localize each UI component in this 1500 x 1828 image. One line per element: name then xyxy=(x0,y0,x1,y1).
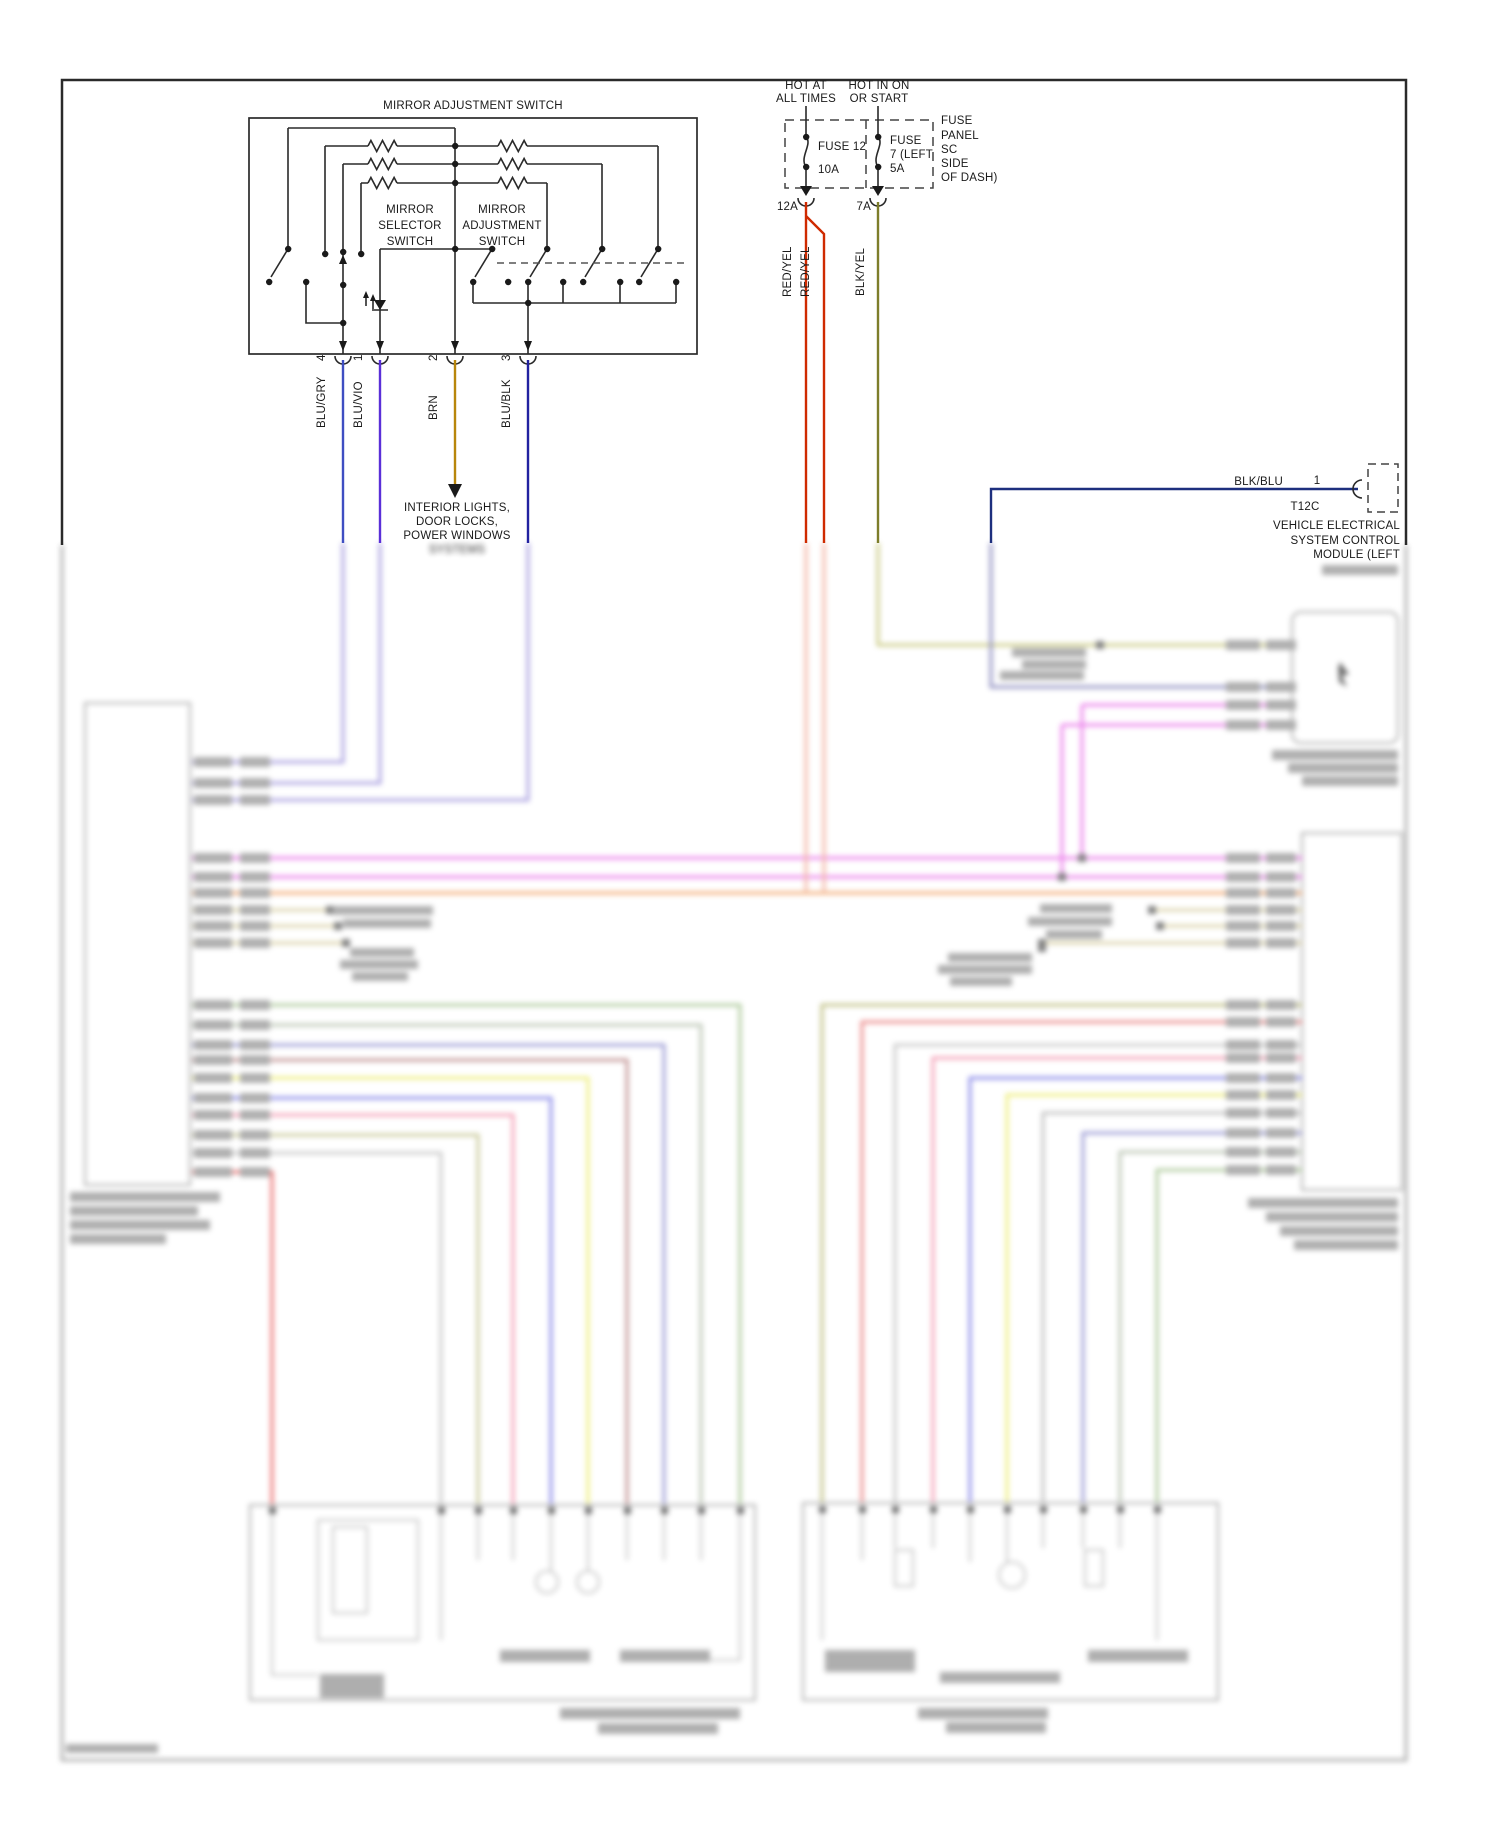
blk-blu-label: BLK/BLU xyxy=(1234,476,1283,488)
svg-text:MODULE (LEFT: MODULE (LEFT xyxy=(1313,549,1400,561)
vescm-connector-id: T12C xyxy=(1291,501,1320,513)
svg-text:PANEL: PANEL xyxy=(941,130,979,142)
svg-text:SELECTOR: SELECTOR xyxy=(378,220,441,232)
wiring-diagram-page: SYSTEMS MIRROR ADJUSTMENT SWITCH xyxy=(0,0,1500,1828)
hot-in-on-label: HOT IN ON xyxy=(848,80,909,92)
left-wire-bundle xyxy=(192,1005,740,1505)
svg-text:DOOR LOCKS,: DOOR LOCKS, xyxy=(416,516,498,528)
cross-car-wires xyxy=(192,543,1302,893)
svg-text:OF DASH): OF DASH) xyxy=(941,172,998,184)
fuse-12-label: FUSE 12 xyxy=(818,141,866,153)
brn-note-line-4: SYSTEMS xyxy=(429,544,485,556)
svg-text:7 (LEFT: 7 (LEFT xyxy=(890,149,933,161)
svg-text:INTERIOR LIGHTS,: INTERIOR LIGHTS, xyxy=(404,502,510,514)
pin-number: 1 xyxy=(353,354,365,361)
svg-text:OR START: OR START xyxy=(850,93,909,105)
brn-note: INTERIOR LIGHTS, DOOR LOCKS, POWER WINDO… xyxy=(403,502,510,542)
pin-number: 2 xyxy=(428,354,440,361)
wire-label: BLK/YEL xyxy=(855,248,867,296)
right-mirror-module-box xyxy=(1302,833,1402,1190)
fuse-connector-icons xyxy=(798,198,886,206)
led-icon xyxy=(363,291,388,310)
vescm-pin-number: 1 xyxy=(1314,475,1321,487)
brn-arrow-icon xyxy=(448,484,462,498)
bottom-left-assembly-box xyxy=(250,1505,755,1700)
page-border xyxy=(62,80,1406,545)
connector-7a-label: 7A xyxy=(857,201,872,213)
adjustment-label: MIRROR xyxy=(478,204,526,216)
vescm-dashed-box xyxy=(1368,464,1398,512)
switch-box-title: MIRROR ADJUSTMENT SWITCH xyxy=(383,100,563,112)
fuse-7-label: FUSE xyxy=(890,135,922,147)
wiper-arrow-icon xyxy=(339,255,347,264)
connector-12a-label: 12A xyxy=(777,201,798,213)
hot-at-all-times-label: HOT AT xyxy=(785,80,827,92)
svg-text:ADJUSTMENT: ADJUSTMENT xyxy=(462,220,541,232)
pin-number: 4 xyxy=(316,354,328,361)
svg-text:SC: SC xyxy=(941,144,957,156)
wire-label: BLU/VIO xyxy=(353,381,365,428)
sharp-section: MIRROR ADJUSTMENT SWITCH MIRROR SELECTOR… xyxy=(62,80,1406,561)
svg-text:5A: 5A xyxy=(890,163,905,175)
wire-label: RED/YEL xyxy=(800,246,812,297)
wire-label: RED/YEL xyxy=(782,246,794,297)
fuse-12-rating: 10A xyxy=(818,164,839,176)
left-mirror-module-box xyxy=(85,703,190,1185)
fuse-12-icon xyxy=(804,137,808,167)
wiring-diagram: SYSTEMS MIRROR ADJUSTMENT SWITCH xyxy=(0,0,1500,1828)
svg-text:POWER WINDOWS: POWER WINDOWS xyxy=(403,530,510,542)
pin-number: 3 xyxy=(501,354,513,361)
svg-text:SYSTEM CONTROL: SYSTEM CONTROL xyxy=(1290,535,1400,547)
mirror-adjustment-switch-box: MIRROR ADJUSTMENT SWITCH MIRROR SELECTOR… xyxy=(249,100,697,428)
fuse-7-icon xyxy=(876,137,880,167)
wire-label: BLU/BLK xyxy=(501,379,513,428)
selector-label: MIRROR xyxy=(386,204,434,216)
svg-text:SWITCH: SWITCH xyxy=(387,236,434,248)
vescm-name: VEHICLE ELECTRICAL xyxy=(1273,520,1400,532)
fuse-panel: HOT AT ALL TIMES HOT IN ON OR START FUSE… xyxy=(776,80,998,543)
upper-right-module-box xyxy=(1292,612,1398,743)
vescm-connector: BLK/BLU 1 T12C VEHICLE ELECTRICAL SYSTEM… xyxy=(991,464,1400,561)
wire-label: BRN xyxy=(428,395,440,420)
wire-label: BLU/GRY xyxy=(316,376,328,428)
blurred-circuit-area: SYSTEMS xyxy=(62,543,1406,1760)
panel-location-label: FUSE xyxy=(941,115,973,127)
bottom-right-assembly-box xyxy=(803,1503,1218,1700)
svg-text:SIDE: SIDE xyxy=(941,158,969,170)
svg-text:ALL TIMES: ALL TIMES xyxy=(776,93,836,105)
svg-text:SWITCH: SWITCH xyxy=(479,236,526,248)
left-module-pin-blobs xyxy=(194,757,270,1177)
pin-arrow-icons xyxy=(339,341,532,351)
